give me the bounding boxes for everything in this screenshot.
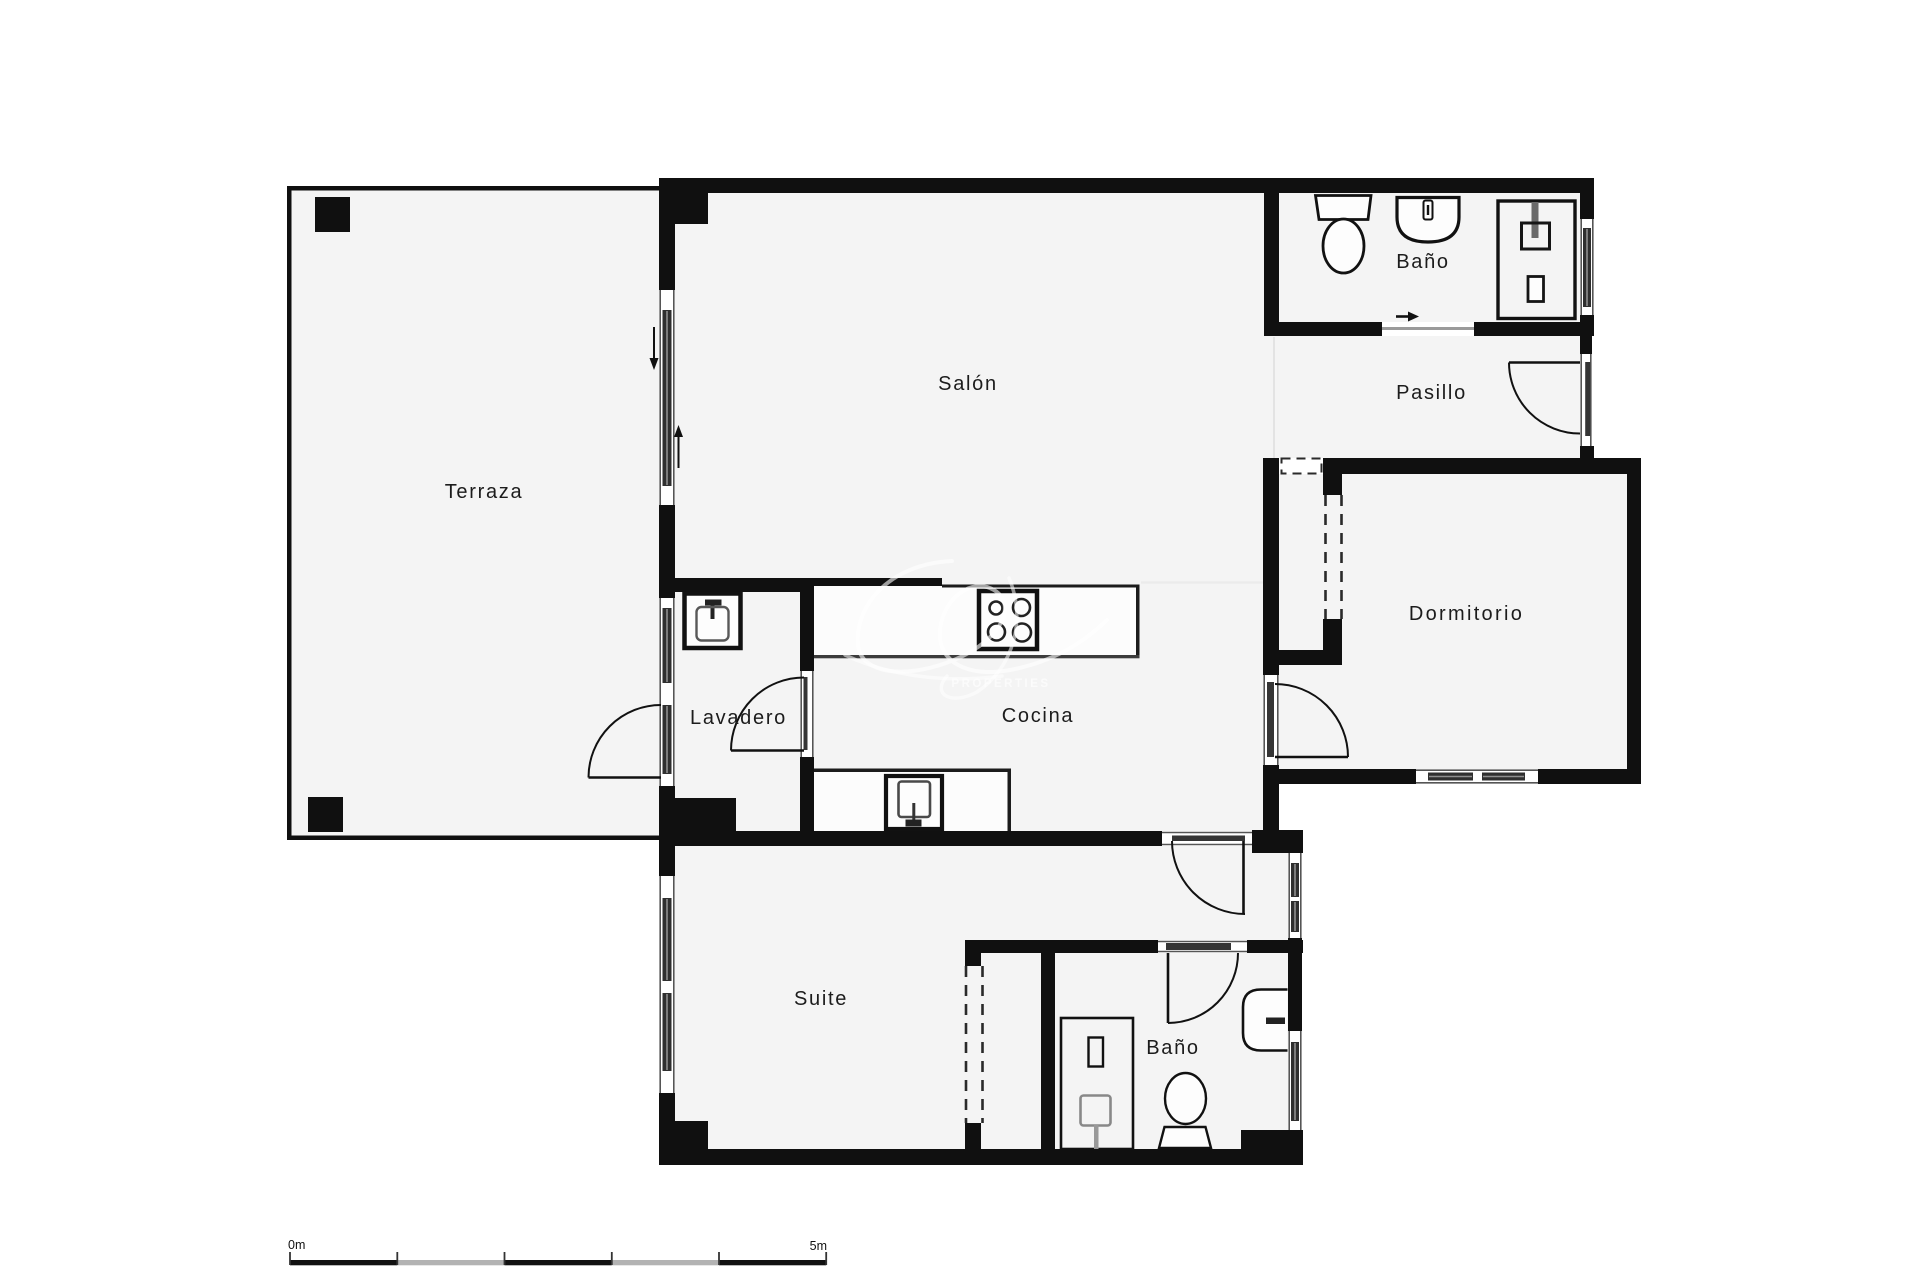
svg-text:5m: 5m	[810, 1239, 827, 1253]
svg-text:Suite: Suite	[794, 988, 848, 1010]
svg-text:PROPERTIES: PROPERTIES	[951, 678, 1050, 690]
svg-text:Dormitorio: Dormitorio	[1409, 603, 1524, 625]
svg-text:Cocina: Cocina	[1002, 705, 1074, 727]
svg-text:Lavadero: Lavadero	[690, 707, 787, 729]
svg-text:Pasillo: Pasillo	[1396, 382, 1467, 404]
svg-text:Terraza: Terraza	[445, 481, 524, 503]
svg-text:Salón: Salón	[938, 373, 998, 395]
svg-text:Baño: Baño	[1396, 251, 1450, 273]
svg-text:0m: 0m	[288, 1238, 305, 1252]
svg-text:Baño: Baño	[1146, 1037, 1200, 1059]
